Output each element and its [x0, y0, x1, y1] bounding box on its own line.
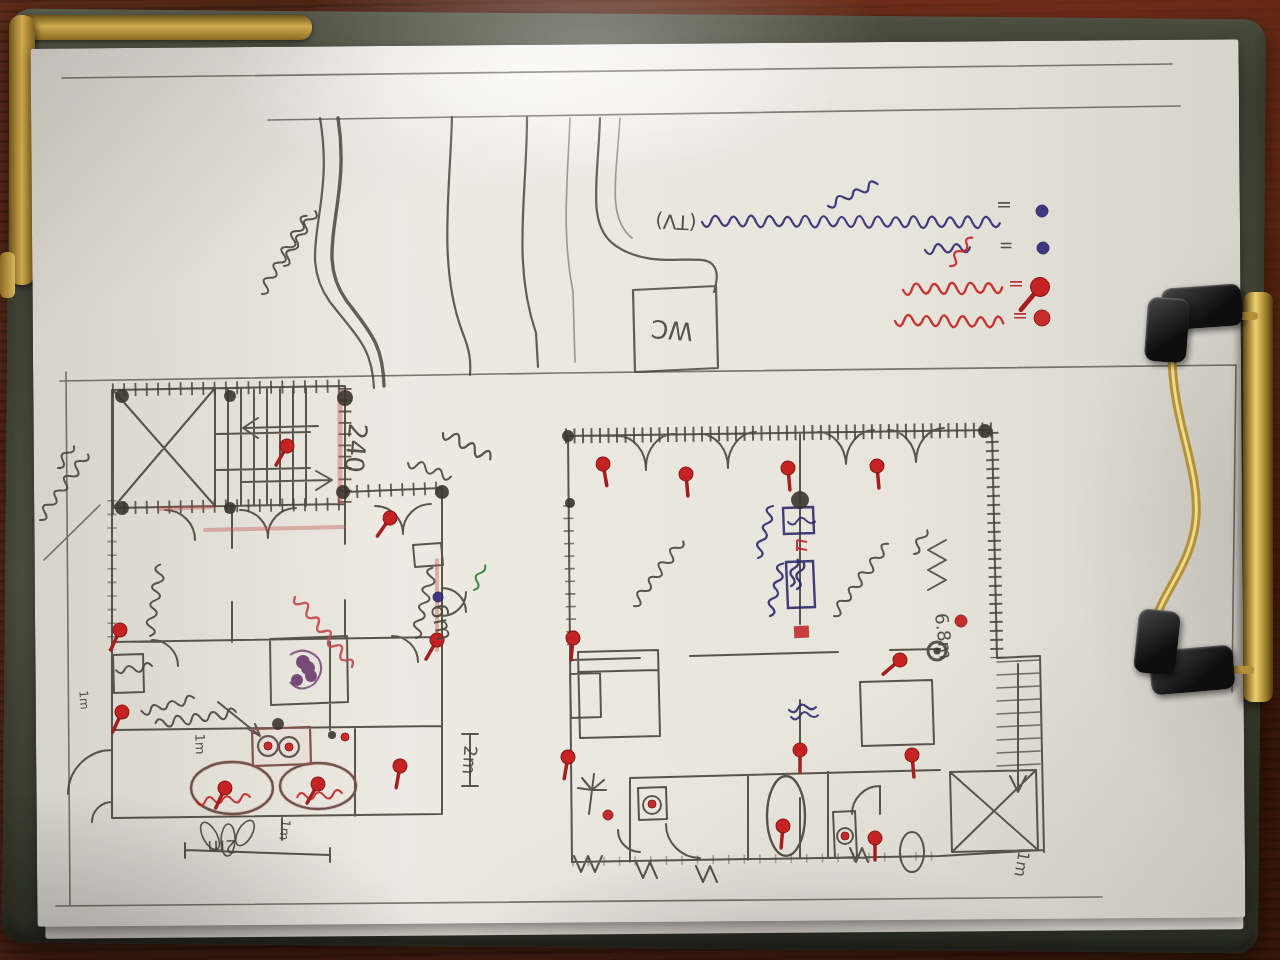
paper-sheet: [31, 39, 1246, 926]
clipboard-corner-bracket-top: [14, 15, 312, 40]
clipboard-bracket-foot: [0, 252, 15, 298]
photo-scene: legend row 1 - Thai handwriting in blue …: [0, 0, 1280, 960]
clip-grip-bottom-vertical: [1133, 608, 1181, 676]
clip-grip-top-vertical: [1144, 297, 1190, 364]
clip-brass-bar: [1243, 292, 1273, 702]
